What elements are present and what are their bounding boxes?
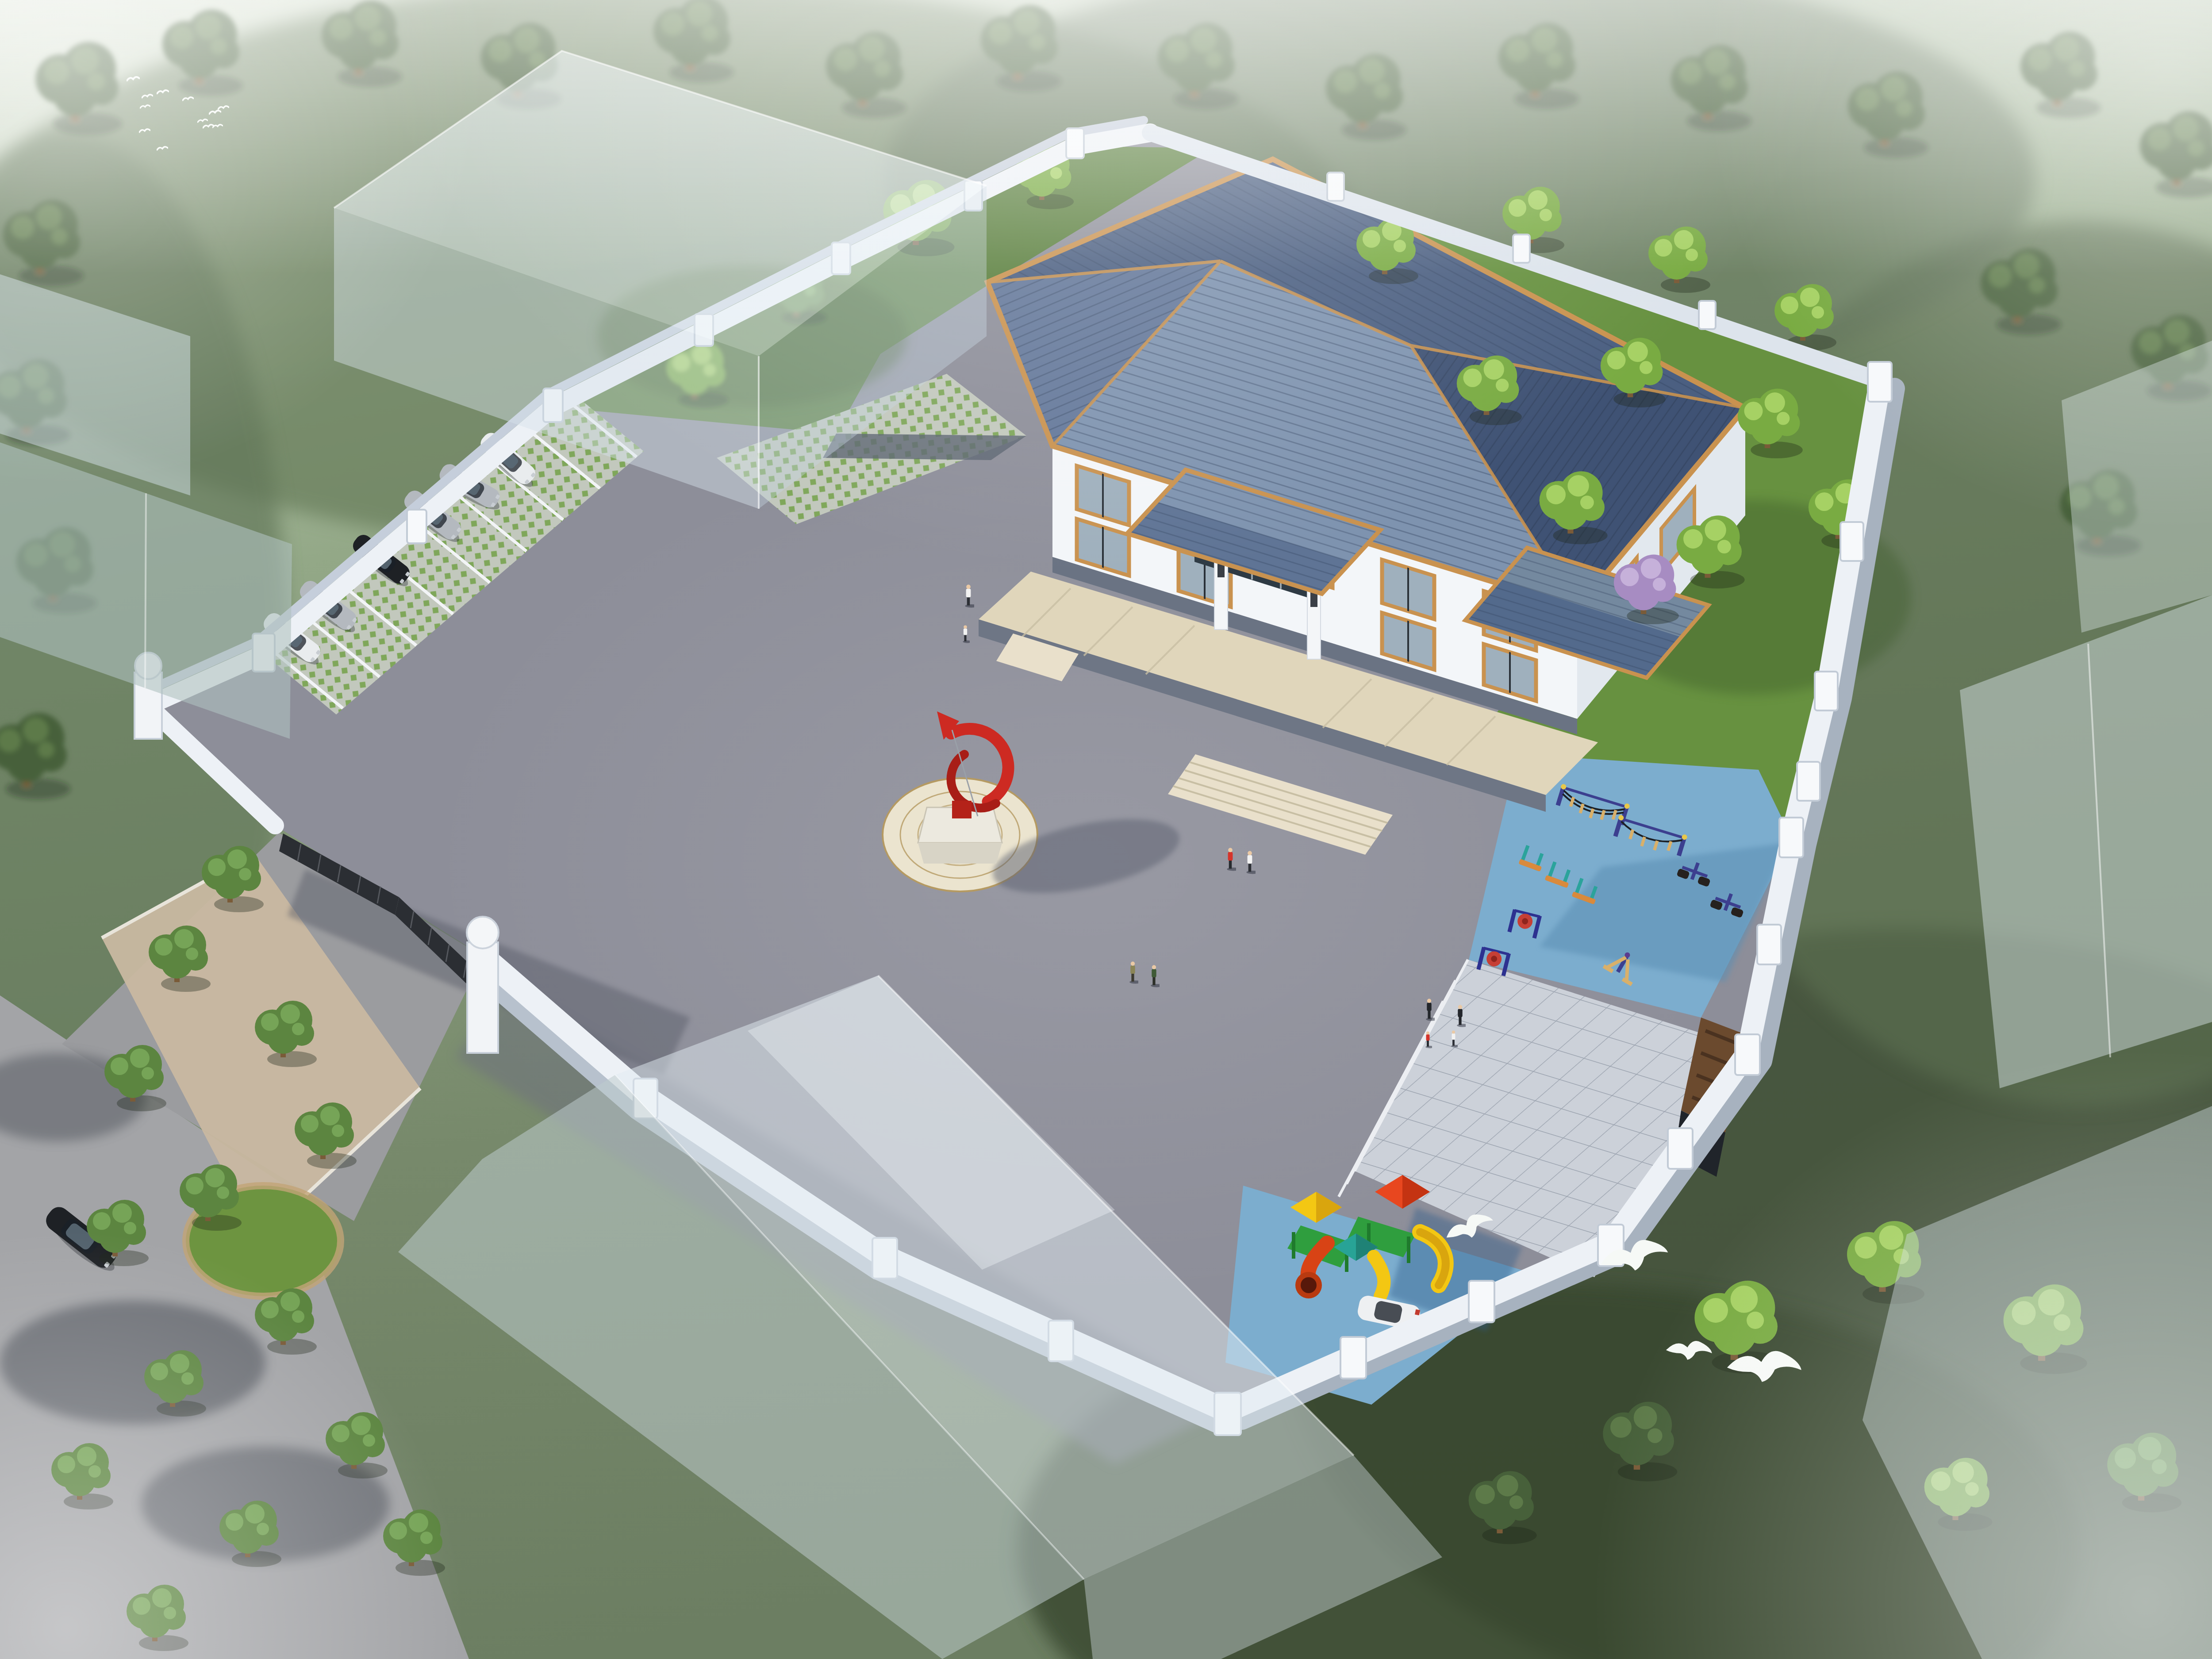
gate-pillar-finial xyxy=(467,917,499,949)
gate-pillar xyxy=(467,942,498,1053)
sculpture-plinth-face xyxy=(918,843,1002,864)
rendering-canvas: Aerial 3D architectural rendering of a w… xyxy=(0,0,2212,1659)
tree xyxy=(0,713,70,799)
